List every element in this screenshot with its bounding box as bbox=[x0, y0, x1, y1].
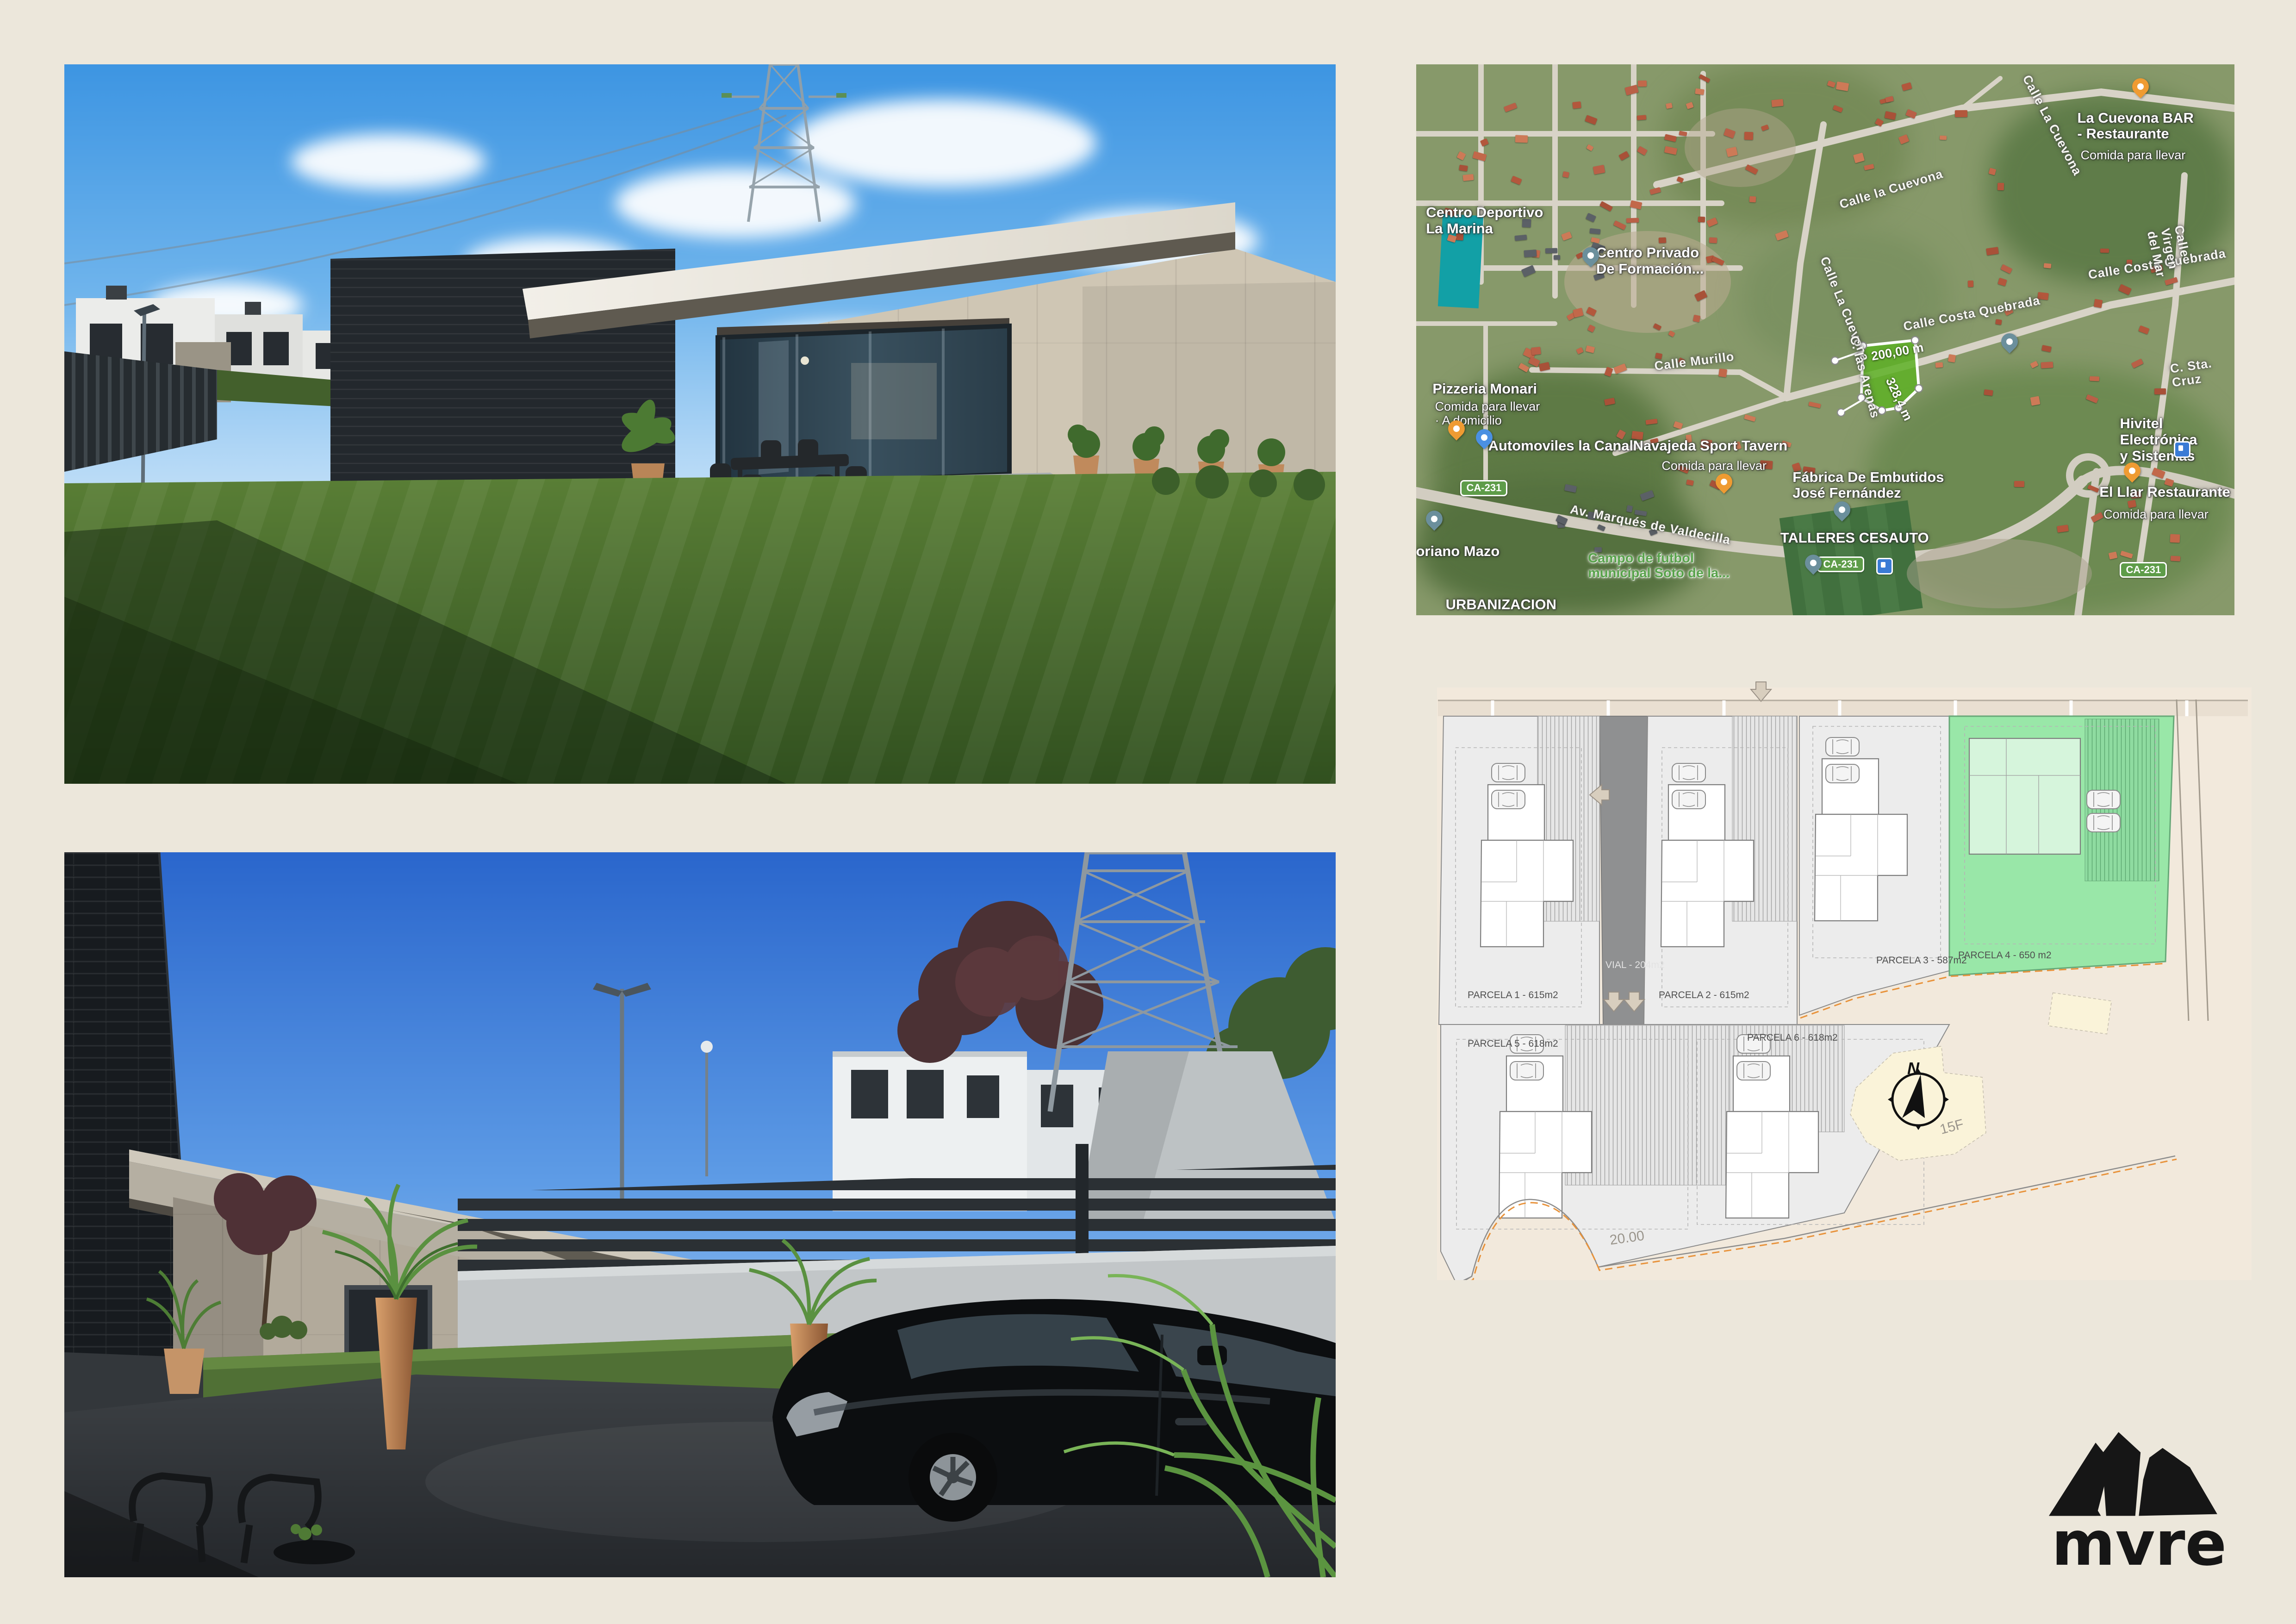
place-pin bbox=[1801, 551, 1825, 575]
plan-label: PARCELA 5 - 618m2 bbox=[1468, 1038, 1558, 1049]
restaurant-pin bbox=[2121, 459, 2144, 483]
place-pin bbox=[1830, 498, 1854, 521]
garden-render-scene bbox=[64, 64, 1336, 784]
shopping-pin bbox=[1473, 425, 1496, 449]
render-driveway-photo bbox=[64, 852, 1336, 1577]
render-garden-photo bbox=[64, 64, 1336, 784]
restaurant-pin bbox=[2129, 75, 2153, 98]
site-plan: PARCELA 1 - 615m2PARCELA 2 - 615m2PARCEL… bbox=[1437, 669, 2252, 1280]
black-car bbox=[772, 1299, 1336, 1522]
place-pin bbox=[1423, 507, 1446, 531]
plan-label: PARCELA 4 - 650 m2 bbox=[1958, 950, 2052, 961]
brochure-page: Centro Deportivo La MarinaCentro Privado… bbox=[0, 0, 2296, 1624]
plan-labels: PARCELA 1 - 615m2PARCELA 2 - 615m2PARCEL… bbox=[1437, 669, 2252, 1280]
restaurant-pin bbox=[1444, 417, 1468, 440]
plan-label: N bbox=[1907, 1059, 1919, 1078]
map-pins bbox=[1416, 64, 2234, 615]
bus-pin bbox=[1876, 558, 1893, 575]
lawn bbox=[64, 472, 1336, 784]
plan-label: PARCELA 1 - 615m2 bbox=[1468, 990, 1558, 1001]
mountain-logo-icon bbox=[2040, 1427, 2225, 1519]
plan-label: PARCELA 2 - 615m2 bbox=[1659, 990, 1749, 1001]
place-pin bbox=[1998, 330, 2022, 353]
plan-label: VIAL - 204m2 bbox=[1605, 960, 1665, 971]
plan-label: PARCELA 6 - 618m2 bbox=[1747, 1032, 1838, 1043]
location-satellite-map: Centro Deportivo La MarinaCentro Privado… bbox=[1416, 64, 2234, 615]
logo-wordmark: mvre bbox=[2047, 1508, 2232, 1580]
plan-label: 20.00 bbox=[1609, 1228, 1645, 1249]
place-pin bbox=[1579, 244, 1602, 268]
plan-label: 15F bbox=[1938, 1117, 1966, 1138]
driveway-render-scene bbox=[64, 852, 1336, 1577]
restaurant-pin bbox=[1712, 470, 1736, 494]
plan-label: PARCELA 3 - 587m2 bbox=[1876, 955, 1967, 966]
bus-pin bbox=[2174, 441, 2190, 458]
mvre-logo: mvre bbox=[2040, 1427, 2234, 1575]
